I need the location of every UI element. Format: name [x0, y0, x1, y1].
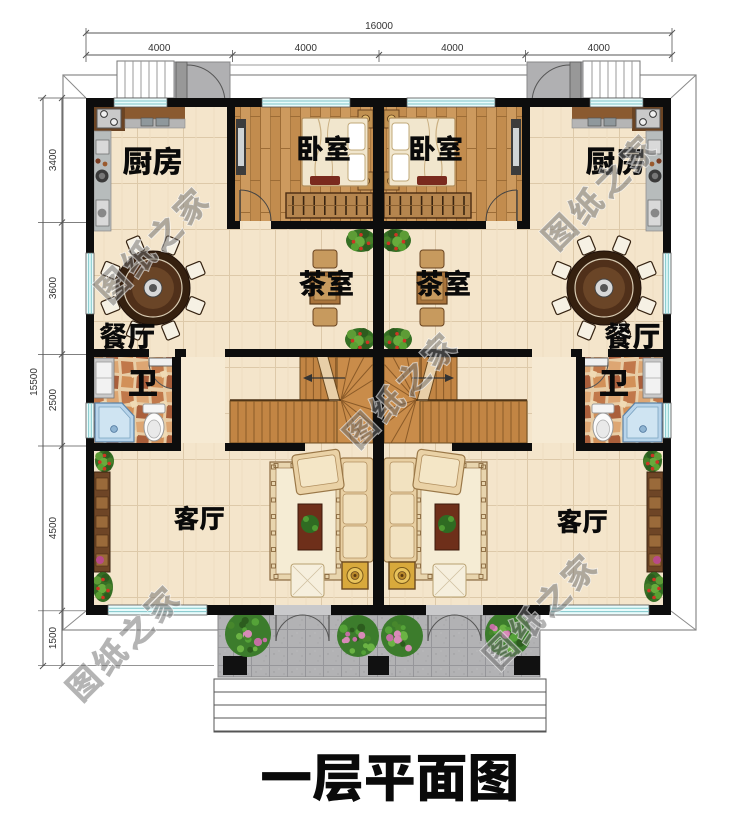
svg-text:16000: 16000 [365, 21, 393, 32]
svg-text:2500: 2500 [48, 388, 59, 411]
svg-text:4000: 4000 [441, 43, 464, 54]
svg-text:4000: 4000 [295, 43, 318, 54]
svg-text:4000: 4000 [148, 43, 171, 54]
svg-text:15500: 15500 [29, 368, 40, 396]
svg-text:1500: 1500 [48, 626, 59, 649]
svg-text:4500: 4500 [48, 516, 59, 539]
svg-text:4000: 4000 [588, 43, 611, 54]
svg-text:3400: 3400 [48, 148, 59, 171]
svg-text:3600: 3600 [48, 276, 59, 299]
